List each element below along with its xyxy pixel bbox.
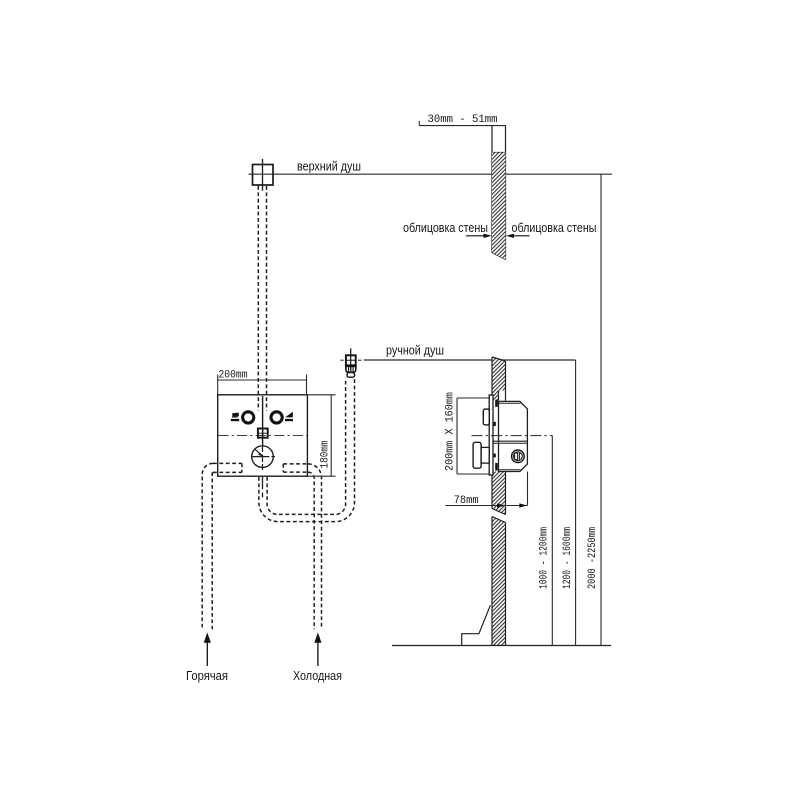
svg-text:облицовка стены: облицовка стены (512, 220, 597, 235)
svg-text:Горячая: Горячая (186, 668, 228, 683)
svg-text:200mm X 160mm: 200mm X 160mm (445, 392, 457, 471)
svg-text:облицовка стены: облицовка стены (403, 220, 488, 235)
svg-text:ручной душ: ручной душ (386, 343, 444, 358)
svg-text:78mm: 78mm (454, 495, 479, 507)
svg-text:Холодная: Холодная (293, 668, 342, 683)
svg-text:верхний душ: верхний душ (297, 159, 361, 174)
svg-text:1000 - 1200mm: 1000 - 1200mm (539, 527, 551, 589)
svg-text:30mm - 51mm: 30mm - 51mm (428, 114, 498, 126)
svg-text:200mm: 200mm (219, 370, 248, 382)
svg-text:2000 -2250mm: 2000 -2250mm (587, 527, 599, 589)
svg-text:1200 - 1600mm: 1200 - 1600mm (562, 527, 574, 589)
svg-text:180mm: 180mm (320, 440, 332, 468)
